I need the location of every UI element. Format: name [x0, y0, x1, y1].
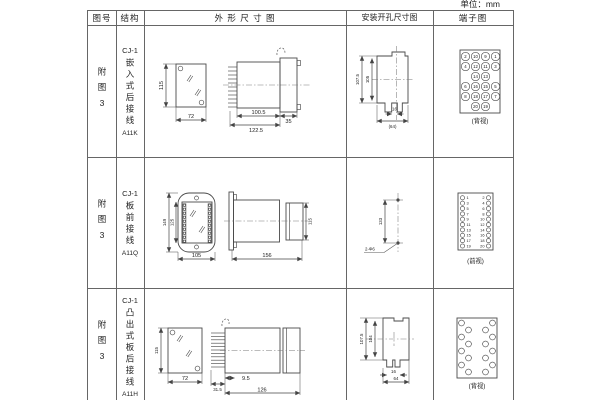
terminal-circles — [461, 52, 499, 110]
dim-side-d1: 156 — [262, 253, 271, 259]
svg-text:15: 15 — [467, 233, 471, 238]
svg-text:19: 19 — [483, 104, 488, 109]
dim-front-width: 72 — [188, 114, 194, 120]
svg-text:4: 4 — [464, 64, 467, 69]
view-label: (前视) — [467, 256, 484, 265]
unit-label: 单位：mm — [420, 0, 500, 10]
structure-desc: 板前接线 — [124, 201, 136, 247]
dim-front-h2: 125 — [170, 218, 175, 226]
clamp-hook — [222, 319, 229, 326]
dim-mount-h2: (64) — [389, 124, 397, 129]
svg-text:5: 5 — [467, 206, 469, 211]
dim-mount-h1: 16 — [391, 369, 396, 374]
svg-text:10: 10 — [473, 54, 478, 59]
structure-row2: CJ-1 板前接线 A11Q — [116, 157, 144, 288]
svg-text:20: 20 — [473, 104, 478, 109]
svg-text:18: 18 — [480, 238, 484, 243]
mounting-diagram-row1: 107.5 105 16 (64) — [346, 25, 433, 157]
dim-mount-v1: 133 — [378, 217, 383, 225]
outline-diagram-row1: 115 72 100.5 — [144, 25, 346, 157]
svg-text:12: 12 — [473, 64, 478, 69]
svg-text:18: 18 — [473, 94, 478, 99]
dim-side-d1: 100.5 — [252, 110, 266, 116]
svg-text:17: 17 — [483, 94, 488, 99]
side-view: 100.5 35 122.5 — [223, 48, 311, 134]
svg-text:9: 9 — [467, 217, 469, 222]
svg-text:1: 1 — [494, 54, 497, 59]
svg-text:2: 2 — [482, 195, 484, 200]
dim-mount-v1: 107.5 — [359, 333, 364, 345]
terminal-strip-circles — [183, 204, 211, 242]
structure-code: A11H — [122, 391, 138, 398]
clamp-hook — [277, 48, 285, 55]
outline-diagram-row2: 149 125 105 156 115 — [144, 157, 346, 288]
svg-text:11: 11 — [483, 64, 488, 69]
svg-text:5: 5 — [494, 84, 497, 89]
terminal-circles — [459, 320, 496, 375]
terminal-diagram-row1: 2 10 9 1 4 12 11 3 14 13 6 16 15 5 8 18 … — [433, 25, 513, 157]
structure-desc: 嵌入式后接线 — [124, 58, 136, 127]
terminal-pins — [211, 333, 225, 367]
dim-mount-v2: 104 — [368, 335, 373, 343]
header-mounting: 安装开孔尺寸图 — [346, 12, 433, 24]
dim-side-d2: 9.5 — [242, 376, 250, 382]
header-terminal: 端子图 — [433, 12, 513, 24]
svg-text:4: 4 — [482, 201, 485, 206]
manual-page: 单位：mm 图号 结构 外 形 尺 寸 图 安装开孔尺寸图 端子图 附图3 CJ… — [0, 0, 600, 400]
dim-front-width: 105 — [192, 253, 201, 259]
svg-text:15: 15 — [483, 84, 488, 89]
structure-row1: CJ-1 嵌入式后接线 A11K — [116, 25, 144, 157]
header-outline: 外 形 尺 寸 图 — [144, 12, 346, 24]
hole-spec-label: 2-Φ6 — [365, 247, 375, 252]
structure-code: A11K — [122, 130, 137, 137]
view-label: (背视) — [472, 116, 489, 125]
terminal-diagram-row2: 1 3 5 7 9 11 13 15 17 19 2 4 6 8 10 12 1… — [433, 157, 513, 288]
header-figure-no: 图号 — [88, 12, 116, 24]
side-view: 156 115 — [224, 192, 313, 261]
svg-text:7: 7 — [467, 211, 469, 216]
mounting-diagram-row3: 107.5 104 16 64 — [346, 288, 433, 400]
dim-mount-h2: 64 — [394, 376, 399, 381]
header-structure: 结构 — [116, 12, 144, 24]
structure-code: A11Q — [122, 250, 138, 257]
view-label: (背视) — [469, 381, 486, 390]
terminal-circles — [460, 196, 490, 248]
front-view: 115 72 — [159, 64, 206, 122]
svg-text:6: 6 — [482, 206, 484, 211]
figure-no-row1: 附图3 — [88, 25, 116, 157]
mounting-diagram-row2: 133 2-Φ6 — [346, 157, 433, 288]
table-border — [513, 10, 514, 400]
terminal-diagram-row3: (背视) — [433, 288, 513, 400]
svg-text:3: 3 — [494, 64, 497, 69]
svg-text:10: 10 — [480, 217, 485, 222]
svg-text:2: 2 — [464, 54, 467, 59]
figure-no-row3: 附图3 — [88, 288, 116, 400]
front-view: 115 72 — [154, 328, 202, 384]
outline-diagram-row3: 115 72 9.5 31.5 — [144, 288, 346, 400]
structure-desc: 凸出式板后接线 — [124, 308, 136, 389]
svg-text:8: 8 — [482, 211, 484, 216]
svg-text:1: 1 — [467, 195, 469, 200]
svg-text:16: 16 — [480, 233, 484, 238]
dim-front-height: 115 — [159, 81, 165, 90]
svg-text:17: 17 — [467, 238, 471, 243]
model-label: CJ-1 — [122, 296, 138, 305]
dim-mount-v2: 105 — [365, 75, 370, 83]
dim-front-height: 115 — [154, 346, 159, 354]
terminal-numbers: 1 3 5 7 9 11 13 15 17 19 2 4 6 8 10 12 1… — [467, 195, 486, 248]
dim-side-d1: 31.5 — [213, 387, 222, 392]
svg-text:12: 12 — [480, 222, 484, 227]
svg-text:11: 11 — [467, 222, 471, 227]
dim-mount-h1: 16 — [392, 107, 397, 112]
dim-side-d2: 115 — [308, 217, 313, 225]
svg-text:8: 8 — [464, 94, 467, 99]
table-border — [87, 10, 514, 11]
svg-text:14: 14 — [480, 227, 485, 232]
structure-row3: CJ-1 凸出式板后接线 A11H — [116, 288, 144, 400]
side-view: 9.5 31.5 126 — [211, 319, 305, 395]
terminal-numbers: 2 10 9 1 4 12 11 3 14 13 6 16 15 5 8 18 … — [464, 54, 497, 109]
dim-side-d3: 35 — [285, 119, 291, 125]
svg-text:13: 13 — [467, 227, 471, 232]
svg-text:6: 6 — [464, 84, 467, 89]
dim-front-width: 72 — [182, 376, 188, 382]
svg-text:20: 20 — [480, 243, 485, 248]
dim-side-d3: 126 — [257, 388, 266, 394]
dim-mount-v1: 107.5 — [355, 73, 360, 85]
model-label: CJ-1 — [122, 46, 138, 55]
svg-text:19: 19 — [467, 243, 471, 248]
svg-text:3: 3 — [467, 201, 469, 206]
svg-text:14: 14 — [473, 74, 478, 79]
svg-text:9: 9 — [484, 54, 487, 59]
svg-text:7: 7 — [494, 94, 497, 99]
dim-front-h1: 149 — [162, 218, 167, 226]
svg-text:16: 16 — [473, 84, 478, 89]
model-label: CJ-1 — [122, 189, 138, 198]
front-view: 149 125 105 — [162, 193, 215, 261]
figure-no-row2: 附图3 — [88, 157, 116, 288]
dim-side-d2: 122.5 — [249, 128, 263, 134]
svg-text:13: 13 — [483, 74, 488, 79]
terminal-pins — [228, 67, 237, 107]
